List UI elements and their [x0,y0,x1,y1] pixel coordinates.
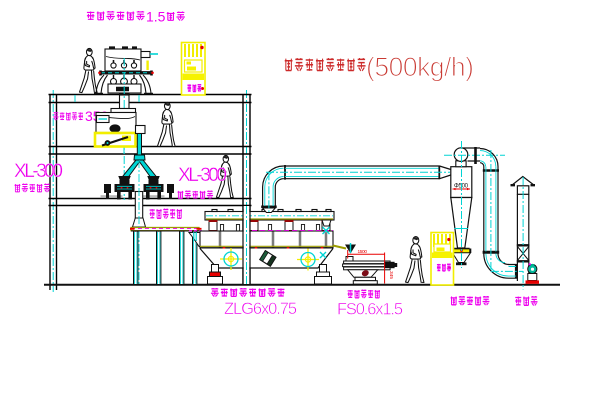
svg-text:XL-300: XL-300 [14,161,63,182]
svg-text:(500kg/h): (500kg/h) [366,52,474,82]
svg-text:1.5: 1.5 [146,9,166,25]
svg-text:1500: 1500 [358,249,368,255]
svg-text:FS0.6x1.5: FS0.6x1.5 [337,301,403,319]
svg-text:ZLG6x0.75: ZLG6x0.75 [224,300,297,318]
svg-text:345: 345 [388,271,394,279]
svg-text:XL-300: XL-300 [178,165,227,186]
